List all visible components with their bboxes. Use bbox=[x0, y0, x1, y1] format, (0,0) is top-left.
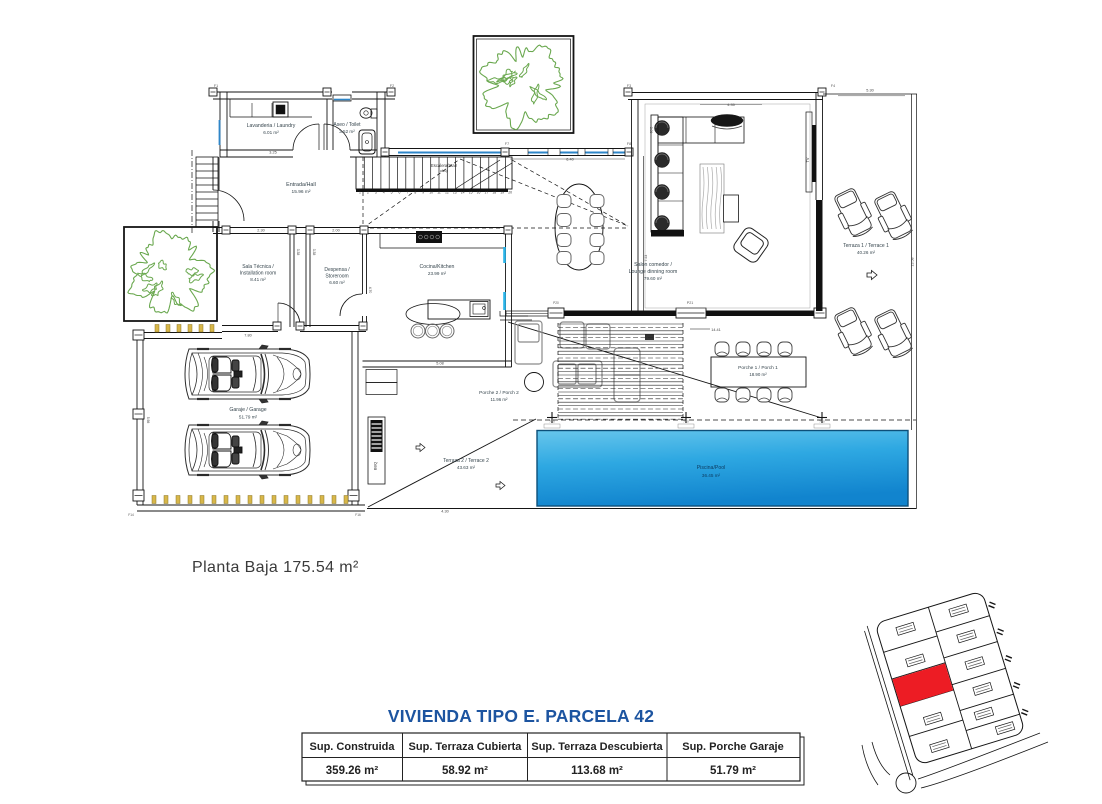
svg-text:79.60 m²: 79.60 m² bbox=[644, 276, 663, 281]
svg-text:1: 1 bbox=[359, 191, 361, 195]
svg-text:12: 12 bbox=[445, 191, 449, 195]
svg-text:6.60 m²: 6.60 m² bbox=[329, 280, 345, 285]
svg-text:6.40: 6.40 bbox=[566, 158, 573, 162]
svg-text:6: 6 bbox=[399, 191, 401, 195]
svg-text:Installation room: Installation room bbox=[240, 271, 277, 277]
svg-text:13.58: 13.58 bbox=[911, 258, 915, 267]
svg-text:Sup. Porche Garaje: Sup. Porche Garaje bbox=[682, 741, 783, 753]
svg-text:alt/up: alt/up bbox=[440, 169, 448, 173]
svg-text:3.38: 3.38 bbox=[296, 249, 300, 256]
svg-text:5.08: 5.08 bbox=[436, 362, 443, 366]
svg-text:40.26 m²: 40.26 m² bbox=[857, 250, 876, 255]
svg-text:6.01 m²: 6.01 m² bbox=[263, 130, 279, 135]
svg-text:51.79 m²: 51.79 m² bbox=[710, 765, 756, 777]
svg-text:4.70: 4.70 bbox=[368, 287, 372, 294]
svg-text:Terraza 2 / Terrace 2: Terraza 2 / Terrace 2 bbox=[443, 458, 489, 464]
svg-text:19: 19 bbox=[500, 191, 504, 195]
svg-text:43.63 m²: 43.63 m² bbox=[457, 465, 476, 470]
svg-text:F7: F7 bbox=[505, 142, 509, 146]
svg-text:Aseo / Toilet: Aseo / Toilet bbox=[333, 122, 361, 128]
svg-text:7.10: 7.10 bbox=[819, 420, 825, 424]
svg-text:3.25: 3.25 bbox=[269, 151, 276, 155]
svg-text:58.92 m²: 58.92 m² bbox=[442, 765, 488, 777]
svg-text:F16: F16 bbox=[355, 513, 361, 517]
svg-text:14: 14 bbox=[461, 191, 465, 195]
svg-text:BBQ: BBQ bbox=[373, 462, 378, 470]
svg-text:36.45 m²: 36.45 m² bbox=[702, 473, 721, 478]
svg-text:Sup. Terraza Descubierta: Sup. Terraza Descubierta bbox=[531, 741, 663, 753]
svg-text:23.99 m²: 23.99 m² bbox=[428, 271, 447, 276]
svg-text:13: 13 bbox=[453, 191, 457, 195]
svg-text:7.80: 7.80 bbox=[244, 334, 251, 338]
svg-text:Sala Técnica /: Sala Técnica / bbox=[242, 264, 274, 270]
svg-text:VIVIENDA TIPO E. PARCELA 42: VIVIENDA TIPO E. PARCELA 42 bbox=[388, 706, 654, 726]
svg-text:51.79 m²: 51.79 m² bbox=[239, 415, 258, 420]
svg-text:2: 2 bbox=[367, 191, 369, 195]
svg-text:P20: P20 bbox=[553, 301, 559, 305]
svg-text:18: 18 bbox=[492, 191, 496, 195]
svg-text:7: 7 bbox=[406, 191, 408, 195]
svg-text:Piscina/Pool: Piscina/Pool bbox=[697, 465, 726, 471]
svg-text:113.68 m²: 113.68 m² bbox=[571, 765, 623, 777]
svg-text:3.38: 3.38 bbox=[312, 249, 316, 256]
svg-text:10: 10 bbox=[429, 191, 433, 195]
svg-text:F4: F4 bbox=[831, 84, 835, 88]
svg-text:Entrada/Hall: Entrada/Hall bbox=[286, 182, 316, 188]
svg-text:17: 17 bbox=[485, 191, 489, 195]
svg-text:15: 15 bbox=[469, 191, 473, 195]
svg-text:3: 3 bbox=[375, 191, 377, 195]
svg-text:F2: F2 bbox=[390, 84, 394, 88]
svg-text:Sup. Construida: Sup. Construida bbox=[310, 741, 396, 753]
svg-text:Garaje / Garage: Garaje / Garage bbox=[229, 407, 266, 413]
svg-text:18.90 m²: 18.90 m² bbox=[749, 372, 767, 377]
svg-text:F14: F14 bbox=[128, 513, 134, 517]
svg-text:Terraza 1 / Terrace 1: Terraza 1 / Terrace 1 bbox=[843, 243, 889, 249]
svg-text:2.30: 2.30 bbox=[257, 229, 264, 233]
svg-text:16: 16 bbox=[477, 191, 481, 195]
svg-text:Cocina/Kitchen: Cocina/Kitchen bbox=[420, 264, 455, 270]
svg-text:5.98: 5.98 bbox=[146, 417, 150, 424]
svg-text:F8: F8 bbox=[627, 142, 631, 146]
svg-text:11.96 m²: 11.96 m² bbox=[490, 397, 508, 402]
svg-text:3.52 m²: 3.52 m² bbox=[339, 129, 355, 134]
svg-text:359.26 m²: 359.26 m² bbox=[326, 765, 379, 777]
svg-text:11: 11 bbox=[437, 191, 441, 195]
svg-text:2.00: 2.00 bbox=[332, 229, 339, 233]
svg-text:7.53: 7.53 bbox=[644, 255, 648, 262]
svg-text:Storeroom: Storeroom bbox=[325, 274, 348, 280]
svg-text:20: 20 bbox=[508, 191, 512, 195]
svg-text:Planta Baja 175.54 m²: Planta Baja 175.54 m² bbox=[192, 559, 359, 576]
svg-text:4.35: 4.35 bbox=[727, 103, 734, 107]
svg-text:7.10: 7.10 bbox=[683, 420, 689, 424]
svg-text:4.30: 4.30 bbox=[441, 510, 448, 514]
svg-text:Lavanderia / Laundry: Lavanderia / Laundry bbox=[247, 123, 296, 129]
svg-text:15.96 m²: 15.96 m² bbox=[292, 189, 311, 195]
svg-text:9: 9 bbox=[422, 191, 424, 195]
svg-text:Escalera/Stair: Escalera/Stair bbox=[431, 163, 458, 168]
svg-text:P21: P21 bbox=[687, 301, 693, 305]
svg-text:TV: TV bbox=[806, 157, 810, 162]
svg-text:Porche 2 / Porch 2: Porche 2 / Porch 2 bbox=[479, 390, 519, 396]
svg-text:14.41: 14.41 bbox=[711, 328, 721, 332]
svg-text:5: 5 bbox=[391, 191, 393, 195]
svg-text:F1: F1 bbox=[214, 84, 218, 88]
svg-text:Porche 1 / Porch 1: Porche 1 / Porch 1 bbox=[738, 365, 778, 371]
svg-text:Lounge dinning room: Lounge dinning room bbox=[629, 269, 678, 275]
svg-text:7.10: 7.10 bbox=[549, 420, 555, 424]
svg-text:Sup. Terraza Cubierta: Sup. Terraza Cubierta bbox=[409, 741, 523, 753]
svg-text:5.30: 5.30 bbox=[866, 89, 873, 93]
svg-text:F3: F3 bbox=[627, 84, 631, 88]
svg-text:4: 4 bbox=[383, 191, 385, 195]
svg-text:8.41 m²: 8.41 m² bbox=[250, 277, 266, 282]
svg-text:Despensa /: Despensa / bbox=[324, 267, 350, 273]
svg-text:Salon comedor /: Salon comedor / bbox=[634, 262, 672, 268]
